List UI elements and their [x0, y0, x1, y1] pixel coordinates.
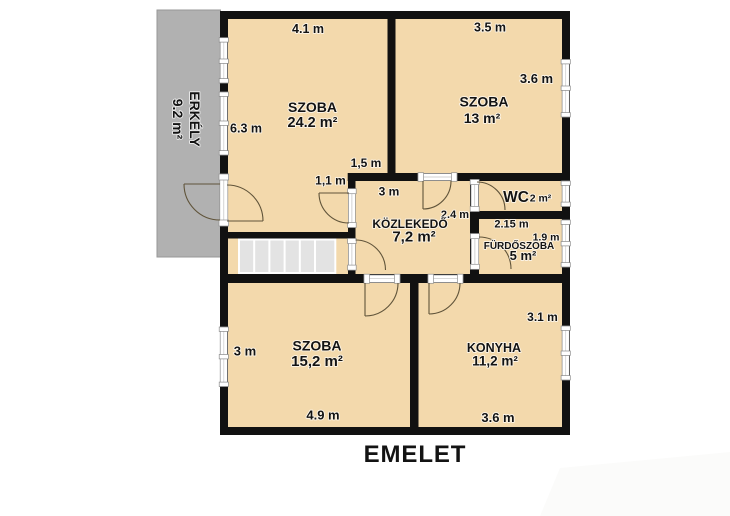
svg-text:4.9 m: 4.9 m	[306, 408, 339, 423]
svg-text:3.1 m: 3.1 m	[527, 310, 558, 324]
svg-text:3 m: 3 m	[379, 185, 400, 199]
svg-text:EMELET: EMELET	[364, 441, 467, 468]
svg-text:9.2 m²: 9.2 m²	[170, 99, 186, 140]
svg-text:1,5 m: 1,5 m	[351, 156, 382, 170]
svg-text:ERKÉLY: ERKÉLY	[187, 91, 203, 147]
svg-text:2.15 m: 2.15 m	[494, 219, 528, 231]
svg-text:1,1 m: 1,1 m	[315, 174, 346, 188]
svg-text:6.3 m: 6.3 m	[230, 122, 262, 136]
svg-text:WC: WC	[503, 189, 529, 206]
svg-text:4.1 m: 4.1 m	[292, 22, 324, 36]
svg-text:SZOBA: SZOBA	[293, 338, 342, 354]
svg-text:11,2 m²: 11,2 m²	[472, 354, 518, 369]
svg-text:3.6 m: 3.6 m	[481, 410, 514, 425]
svg-text:13 m²: 13 m²	[464, 110, 501, 126]
svg-text:3.5 m: 3.5 m	[474, 21, 506, 35]
svg-text:SZOBA: SZOBA	[460, 94, 509, 110]
svg-text:15,2 m²: 15,2 m²	[291, 353, 343, 370]
svg-text:5 m²: 5 m²	[510, 248, 537, 263]
svg-text:24.2 m²: 24.2 m²	[288, 115, 338, 131]
svg-text:3.6 m: 3.6 m	[520, 71, 553, 86]
svg-text:3 m: 3 m	[234, 344, 256, 359]
svg-text:2 m²: 2 m²	[530, 193, 552, 205]
svg-text:SZOBA: SZOBA	[288, 99, 337, 115]
svg-text:7,2 m²: 7,2 m²	[392, 229, 435, 246]
